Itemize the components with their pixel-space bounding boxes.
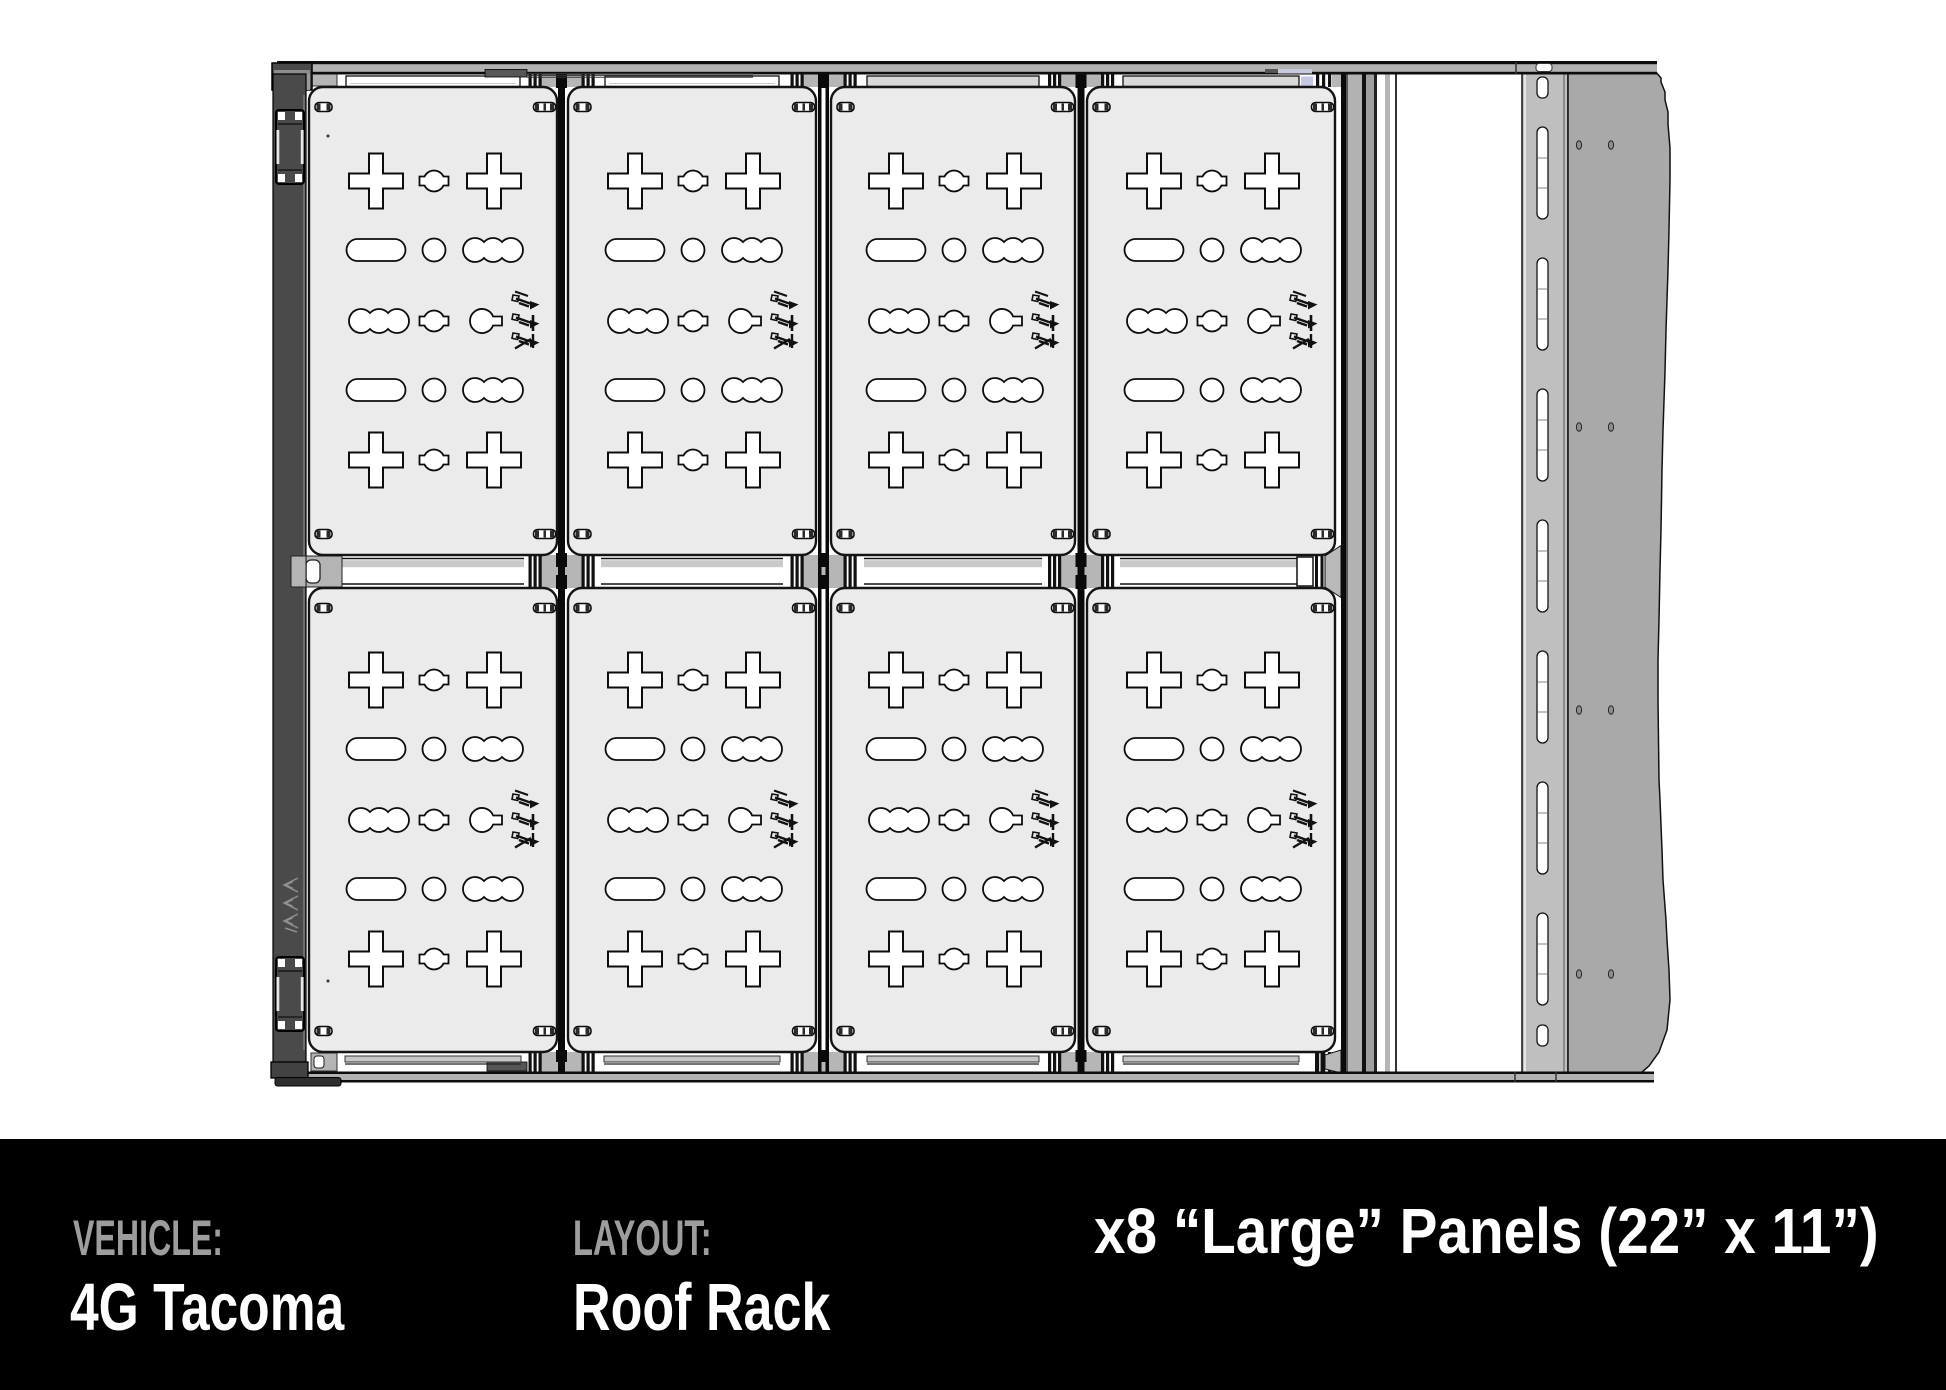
svg-text:VEHICLE:: VEHICLE:	[73, 1210, 223, 1266]
svg-text:Roof Rack: Roof Rack	[573, 1270, 831, 1345]
svg-text:x8 “Large” Panels (22” x 11”): x8 “Large” Panels (22” x 11”)	[1094, 1195, 1879, 1267]
svg-text:LAYOUT:: LAYOUT:	[573, 1210, 712, 1266]
svg-text:4G Tacoma: 4G Tacoma	[70, 1269, 345, 1344]
